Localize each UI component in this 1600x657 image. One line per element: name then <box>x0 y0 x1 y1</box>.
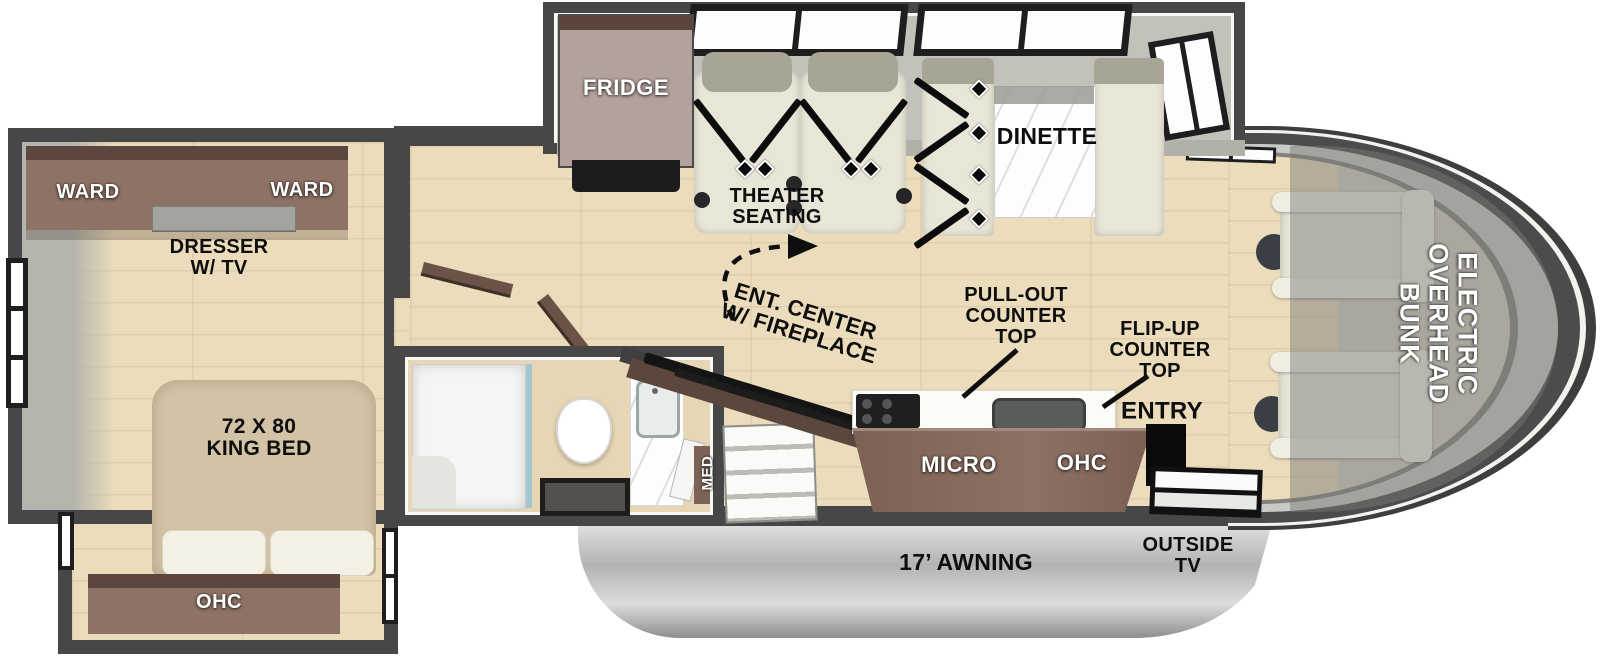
burner <box>862 414 872 424</box>
window-pane <box>386 578 394 620</box>
ward-right-label: WARD <box>270 180 333 202</box>
shower-glass-door <box>526 364 532 508</box>
window-pane <box>921 11 1022 49</box>
dinette-label: DINETTE <box>997 125 1098 149</box>
dresser-tv-label: DRESSER W/ TV <box>170 237 269 279</box>
burner <box>882 399 892 409</box>
entry-steps <box>1149 466 1263 518</box>
toilet <box>556 398 612 464</box>
theater-seat-headrest <box>702 52 792 92</box>
entry-label: ENTRY <box>1121 400 1203 425</box>
flip-up-counter-label: FLIP-UP COUNTER TOP <box>1110 319 1211 381</box>
burner <box>862 399 872 409</box>
pull-out-counter-label: PULL-OUT COUNTER TOP <box>964 285 1068 347</box>
fridge-front <box>572 160 680 192</box>
bath-mat <box>540 478 630 516</box>
bedroom-doorway <box>394 298 410 350</box>
micro-label: MICRO <box>921 453 997 477</box>
outside-tv-label: OUTSIDE TV <box>1143 535 1234 577</box>
bed-slide-window-left <box>58 512 74 570</box>
rv-floorplan: 17’ AWNING OUTSIDE TV WARD WARD DRESSER … <box>0 0 1600 657</box>
faucet <box>652 388 658 394</box>
interior-steps <box>722 422 817 523</box>
king-bed-label: 72 X 80 KING BED <box>206 416 311 460</box>
slideout-window <box>685 4 908 56</box>
window-pane <box>11 311 23 354</box>
dinette-bench-top <box>1094 58 1164 84</box>
window-pane <box>11 360 23 403</box>
step-tread <box>1155 471 1257 491</box>
theater-seat-headrest <box>808 52 898 92</box>
bedroom-window <box>6 258 28 408</box>
bed-slide-window-right <box>382 528 398 624</box>
bedroom-ohc-label: OHC <box>196 592 242 614</box>
overhead-bunk-label: ELECTRIC OVERHEAD BUNK <box>1394 174 1481 474</box>
cupholder <box>896 188 912 204</box>
fridge-label: FRIDGE <box>583 76 669 100</box>
dinette-table-edge <box>994 86 1094 104</box>
kitchen-ohc-label: OHC <box>1057 451 1107 475</box>
step-tread <box>1154 492 1256 510</box>
window-pane <box>11 263 23 306</box>
slideout-window <box>913 4 1132 56</box>
ward-left-label: WARD <box>56 182 119 204</box>
window-pane <box>386 532 394 574</box>
dinette-table <box>994 86 1096 218</box>
theater-seating-label: THEATER SEATING <box>729 186 824 228</box>
window-pane <box>1024 11 1125 49</box>
bedroom-tv <box>152 206 296 232</box>
kitchen-sink <box>992 398 1086 432</box>
window-pane <box>798 11 901 49</box>
awning-label: 17’ AWNING <box>899 551 1033 575</box>
dinette-bench-top <box>922 58 994 84</box>
dinette-bench <box>1094 58 1164 236</box>
shower-seat <box>412 456 456 508</box>
window-pane <box>693 11 796 49</box>
burner <box>882 414 892 424</box>
bed-pillow <box>162 530 266 576</box>
bed-pillow <box>270 530 374 576</box>
cupholder <box>694 192 710 208</box>
med-label: MED <box>700 433 716 513</box>
window-pane <box>62 516 70 566</box>
